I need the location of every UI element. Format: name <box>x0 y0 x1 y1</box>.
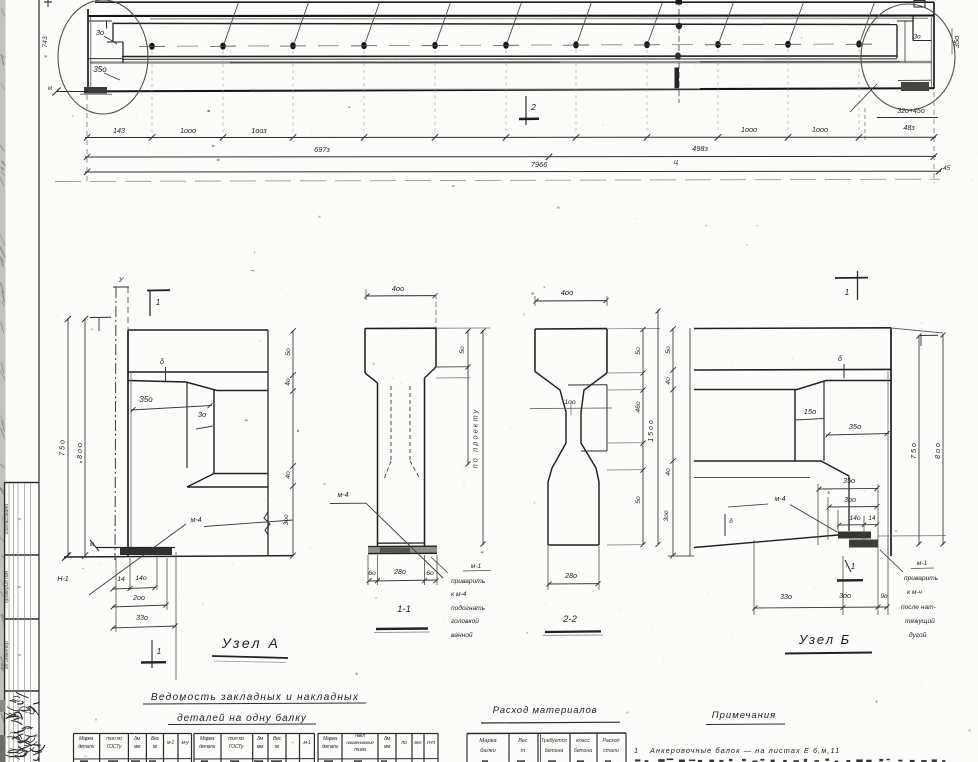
svg-text:Расход: Расход <box>602 738 619 744</box>
svg-text:Примечания: Примечания <box>712 710 777 721</box>
svg-text:2: 2 <box>530 102 536 112</box>
svg-text:6о: 6о <box>368 570 376 577</box>
svg-text:3о: 3о <box>96 28 104 37</box>
svg-text:9о: 9о <box>880 593 888 600</box>
svg-text:3оо: 3оо <box>839 593 851 600</box>
svg-text:28о: 28о <box>564 571 577 580</box>
svg-text:35о: 35о <box>849 422 862 431</box>
svg-text:1-1: 1-1 <box>397 604 411 615</box>
svg-text:стали: стали <box>603 748 619 754</box>
svg-text:4оо: 4оо <box>561 288 574 297</box>
svg-text:4о: 4о <box>665 468 672 476</box>
svg-text:Вес: Вес <box>273 736 282 742</box>
svg-text:48з: 48з <box>903 123 915 132</box>
svg-text:мм: мм <box>134 744 141 750</box>
svg-text:75о: 75о <box>909 441 918 459</box>
svg-text:Н-1: Н-1 <box>57 576 68 583</box>
svg-text:1ооо: 1ооо <box>812 125 828 134</box>
svg-text:14о: 14о <box>849 515 861 522</box>
svg-text:33о: 33о <box>136 615 148 622</box>
svg-text:дугой: дугой <box>909 631 927 639</box>
svg-text:5о: 5о <box>285 348 292 356</box>
svg-text:бетона: бетона <box>545 748 564 754</box>
svg-text:типа: типа <box>354 747 366 753</box>
svg-text:приварить: приварить <box>451 578 486 585</box>
svg-text:Узел Б: Узел Б <box>798 632 851 647</box>
svg-text:1: 1 <box>845 288 849 297</box>
svg-text:т: т <box>521 748 526 754</box>
svg-text:δ: δ <box>838 356 842 363</box>
svg-text:мм: мм <box>384 744 391 750</box>
svg-text:14о: 14о <box>135 575 147 582</box>
svg-text:Анкеровочные балок — на листах: Анкеровочные балок — на листах Е 6,м,11 <box>649 746 840 755</box>
svg-text:1ооо: 1ооо <box>180 126 196 135</box>
svg-text:35о: 35о <box>93 65 107 74</box>
svg-text:балки: балки <box>480 748 496 754</box>
svg-text:7966: 7966 <box>531 160 548 169</box>
svg-text:Вес: Вес <box>151 736 160 742</box>
svg-text:гл.инженер: гл.инженер <box>4 641 10 669</box>
svg-text:3о: 3о <box>913 34 921 41</box>
svg-text:м: м <box>48 86 52 92</box>
svg-text:8оо: 8оо <box>933 441 942 459</box>
svg-text:п-т: п-т <box>427 740 435 746</box>
svg-text:Вес: Вес <box>518 738 528 744</box>
svg-text:697з: 697з <box>314 145 330 154</box>
svg-text:15оо: 15оо <box>648 418 655 442</box>
svg-text:1ооз: 1ооз <box>251 126 267 135</box>
svg-text:δм: δм <box>257 736 264 742</box>
svg-text:Узел А: Узел А <box>221 635 281 651</box>
svg-text:м-1: м-1 <box>471 563 482 570</box>
svg-text:ц: ц <box>674 159 678 166</box>
svg-text:Вес: Вес <box>414 740 422 746</box>
svg-text:Ведомость закладных и накладны: Ведомость закладных и накладных <box>151 692 359 703</box>
svg-text:Марка: Марка <box>79 736 93 742</box>
svg-text:приварить: приварить <box>904 575 939 582</box>
svg-text:4о: 4о <box>665 377 672 385</box>
svg-text:1оо: 1оо <box>564 399 576 406</box>
svg-text:1ооо: 1ооо <box>741 125 757 134</box>
svg-text:наименование: наименование <box>346 740 374 745</box>
svg-text:после нат-: после нат- <box>901 604 937 611</box>
svg-text:4о: 4о <box>285 471 292 479</box>
svg-text:2оо: 2оо <box>132 595 145 602</box>
svg-text:Марка: Марка <box>479 738 497 744</box>
svg-text:согласовано: согласовано <box>4 504 10 535</box>
svg-text:32о+45о: 32о+45о <box>897 108 925 115</box>
svg-text:ГОСТу: ГОСТу <box>107 744 122 750</box>
svg-text:детали: детали <box>199 744 216 750</box>
svg-text:м-4: м-4 <box>774 496 785 503</box>
svg-text:δм: δм <box>384 736 391 742</box>
svg-text:45: 45 <box>943 165 951 172</box>
svg-text:143: 143 <box>113 126 125 135</box>
svg-text:3оо: 3оо <box>663 510 670 522</box>
svg-text:класс: класс <box>576 738 590 744</box>
svg-text:накл: накл <box>355 733 365 739</box>
svg-text:35о: 35о <box>139 395 153 404</box>
svg-text:4о: 4о <box>285 378 292 386</box>
svg-text:головкой: головкой <box>451 617 479 625</box>
svg-text:м-1: м-1 <box>304 740 311 746</box>
svg-text:Расход материалов: Расход материалов <box>493 705 598 716</box>
svg-text:δ: δ <box>729 518 733 525</box>
svg-text:5о: 5о <box>665 346 672 354</box>
svg-text:δ: δ <box>160 359 164 366</box>
svg-text:5о: 5о <box>459 346 466 354</box>
svg-text:1: 1 <box>851 562 855 571</box>
svg-text:детали: детали <box>78 744 95 750</box>
svg-text:к м-4: к м-4 <box>451 591 467 598</box>
svg-text:4оо: 4оо <box>392 284 405 293</box>
svg-text:м-1: м-1 <box>917 560 928 567</box>
svg-text:ванной: ванной <box>451 631 473 639</box>
svg-text:1: 1 <box>157 647 161 656</box>
svg-text:мм: мм <box>257 744 264 750</box>
svg-text:м-1: м-1 <box>167 740 174 746</box>
svg-text:1: 1 <box>156 298 160 307</box>
svg-text:5о: 5о <box>635 347 642 355</box>
svg-text:детали: детали <box>322 744 339 750</box>
svg-text:743: 743 <box>42 36 49 48</box>
svg-text:м-4: м-4 <box>190 517 201 524</box>
svg-text:14: 14 <box>117 576 125 583</box>
svg-text:к м-ч: к м-ч <box>907 589 923 596</box>
svg-text:15о: 15о <box>804 407 817 416</box>
svg-text:подогнать: подогнать <box>451 604 486 612</box>
svg-text:6о: 6о <box>426 570 434 577</box>
svg-text:Требуется: Требуется <box>541 738 567 744</box>
svg-text:5о: 5о <box>635 496 642 504</box>
svg-text:δм: δм <box>134 736 141 742</box>
svg-text:498з: 498з <box>692 144 708 153</box>
svg-text:Марка: Марка <box>200 736 214 742</box>
svg-text:14: 14 <box>869 515 876 522</box>
svg-text:проверил нач: проверил нач <box>4 571 10 604</box>
svg-text:тип по: тип по <box>228 736 244 742</box>
svg-text:по проекту: по проекту <box>471 408 480 469</box>
svg-text:тяжущий: тяжущий <box>905 617 935 625</box>
svg-text:28о: 28о <box>393 569 406 576</box>
svg-text:8оо: 8оо <box>75 441 84 459</box>
svg-text:3оо: 3оо <box>844 497 856 504</box>
svg-text:1: 1 <box>634 746 638 755</box>
svg-text:по: по <box>401 740 407 746</box>
svg-text:Марка: Марка <box>323 736 337 742</box>
svg-text:75о: 75о <box>58 438 67 456</box>
svg-text:м-4: м-4 <box>337 492 348 499</box>
svg-text:бетона: бетона <box>574 748 592 754</box>
svg-text:ГОСТу: ГОСТу <box>229 744 244 750</box>
svg-text:деталей на одну балку: деталей на одну балку <box>177 712 307 724</box>
svg-text:35о: 35о <box>843 476 855 485</box>
svg-text:33о: 33о <box>780 592 792 601</box>
svg-text:м-у: м-у <box>182 740 189 746</box>
svg-text:тип по: тип по <box>106 736 122 742</box>
svg-text:46о: 46о <box>635 401 642 413</box>
svg-text:3о: 3о <box>198 410 206 419</box>
svg-text:2-2: 2-2 <box>562 614 577 625</box>
